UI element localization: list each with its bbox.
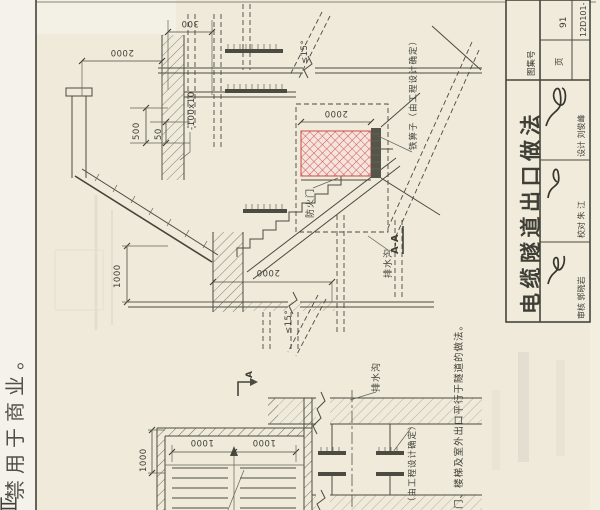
drawing-title: 电缆隧道出口做法 [519,110,543,314]
slope-top-text: ≤15° [300,40,310,64]
grate-label: 铁箅子（由工程设计确定） [408,36,419,150]
atlas-number-label: 图集号 [526,50,537,76]
grate-bar [371,128,381,178]
red-grate-hatch [301,131,371,176]
dim-1000-plan-left-text: 1000 [139,448,149,472]
atlas-number-value: 12D101- [579,2,588,37]
bracket-note-label: （由工程设计确定） [407,420,418,506]
dim-2000-floor-text: 2000 [256,267,280,277]
staff-sheji: 设计 刘俊峰 [576,114,586,157]
watermark-partial-char: 亚 [0,496,21,510]
watermark: 禁用于商业。 亚 [0,344,27,510]
staff-jiaodui: 校对 朱 江 [576,201,586,238]
page-number-value: 91 [559,17,569,28]
staff-shenhe: 审核 郭晓岩 [576,276,586,319]
drawing-note: 门、楼梯及室外出口平行于隧道的做法。 [453,320,465,509]
fire-door-label: 防火门 [304,188,316,218]
dim-50-text: 50 [154,128,164,140]
dim-300-text: 300 [181,18,199,28]
dim-1000-a-text: 1000 [190,437,214,447]
drain-label-plan: 排水沟 [370,362,382,392]
scanned-atlas-page: 300 2000 500 50 -100x10 ≤15° 2000 [0,0,600,510]
dim-1000-wall-text: 1000 [113,264,123,288]
plan-cut-text: A [245,370,255,378]
dim-2000-grate-text: 2000 [324,108,348,118]
section-name-text: A-A [390,234,401,254]
slope-bottom-text: ≤15° [284,310,294,334]
dim-2000-canopy-text: 2000 [110,47,134,57]
dim-500-text: 500 [132,122,142,140]
plate-size-text: -100x10 [187,91,197,130]
watermark-text: 禁用于商业。 [3,344,27,500]
title-block: 12D101- 91 图集号 页 电缆隧道出口做法 审核 郭晓岩 校对 朱 江 … [506,0,590,322]
dim-1000-b-text: 1000 [252,437,276,447]
page-label: 页 [555,57,565,66]
drawing-sheet: 300 2000 500 50 -100x10 ≤15° 2000 [0,0,600,510]
